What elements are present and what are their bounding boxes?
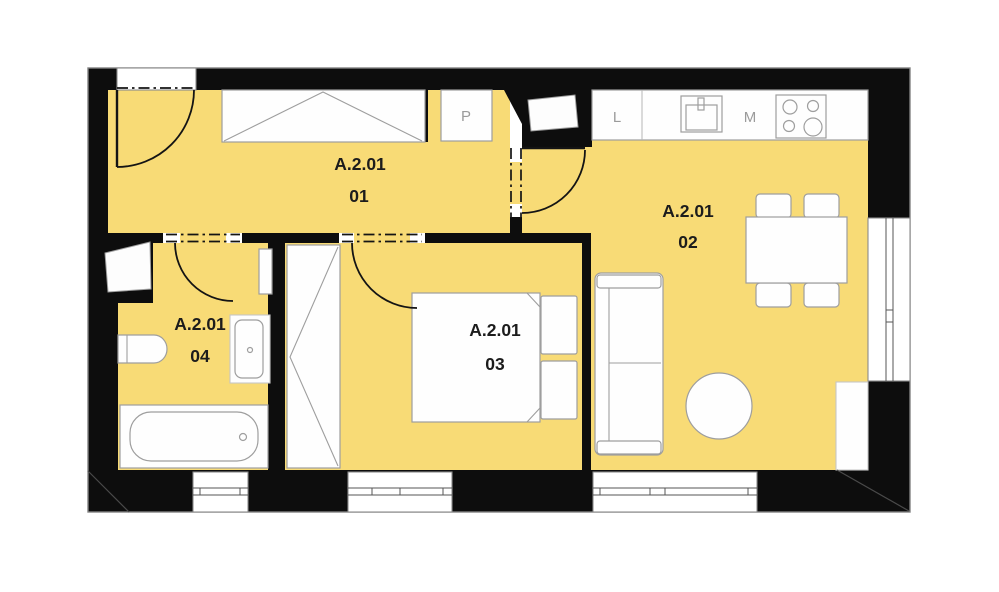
living-label-code: A.2.01 <box>662 201 714 221</box>
wall-top <box>88 68 868 90</box>
chair-top-right <box>804 194 839 218</box>
bathroom-label-number: 04 <box>190 346 210 366</box>
floor-plan-page: A.2.01 01 A.2.01 02 A.2.01 03 A.2.01 04 … <box>0 0 999 592</box>
bed-pillow-top <box>541 296 577 354</box>
hallway-label-code: A.2.01 <box>334 154 386 174</box>
wall-hall-bed-seg3 <box>417 233 591 243</box>
duct-icon-kitchen <box>528 95 578 131</box>
coffee-table-icon <box>686 373 752 439</box>
bathroom-label-code: A.2.01 <box>174 314 226 334</box>
fridge-letter: L <box>613 109 621 126</box>
entrance-opening <box>117 68 196 90</box>
washing-machine-letter: M <box>744 109 757 126</box>
chair-bottom-right <box>804 283 839 307</box>
dining-table-icon <box>746 217 847 283</box>
bedroom-label-number: 03 <box>485 354 505 374</box>
bed-pillow-bottom <box>541 361 577 419</box>
bedroom-label-code: A.2.01 <box>469 320 521 340</box>
kitchen-counter-group <box>592 90 868 140</box>
chair-bottom-left <box>756 283 791 307</box>
floor-plan-drawing: A.2.01 01 A.2.01 02 A.2.01 03 A.2.01 04 … <box>0 0 999 592</box>
window-living <box>593 472 757 512</box>
wall-bedroom-living <box>582 243 591 470</box>
hallway-furniture <box>222 90 492 142</box>
wardrobe-bedroom-icon <box>287 245 340 468</box>
shaft-letter: P <box>461 108 471 125</box>
wall-hall-living-stub <box>510 217 522 234</box>
toilet-icon <box>118 335 167 363</box>
radiator-icon <box>259 249 272 294</box>
living-label-number: 02 <box>678 232 698 252</box>
sofa-icon <box>595 273 663 455</box>
hallway-label-number: 01 <box>349 186 369 206</box>
floor-recess-living <box>836 382 868 470</box>
wall-hall-bed-seg2 <box>233 233 347 243</box>
window-right <box>868 218 910 381</box>
washbasin-outline <box>230 315 270 383</box>
wardrobe-hallway-icon <box>222 90 425 142</box>
chair-top-left <box>756 194 791 218</box>
bed-mattress <box>412 293 540 422</box>
